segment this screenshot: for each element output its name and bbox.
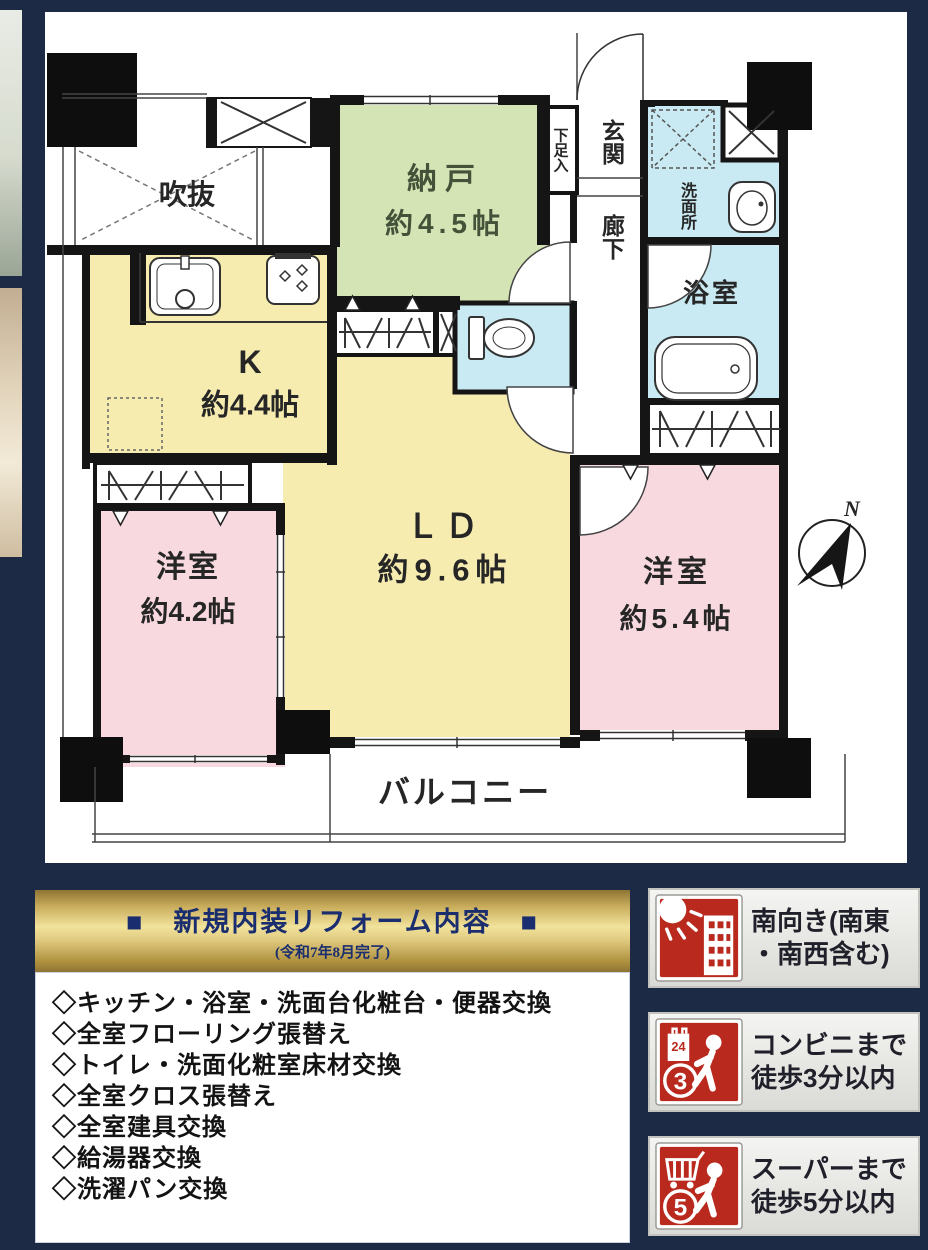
living-dining-label: ＬＤ — [406, 510, 484, 543]
renovation-item: ◇全室クロス張替え — [52, 1082, 629, 1113]
svg-text:24: 24 — [671, 1039, 685, 1054]
feature-badge-convenience-store: 24 3 コンビニまで 徒歩3分以内 — [648, 1012, 920, 1112]
badge-line: スーパーまで — [751, 1153, 907, 1186]
photo-edge-middle — [0, 288, 22, 557]
kitchen-sink-icon — [150, 256, 220, 315]
west-room-a-label: 洋室 — [156, 553, 220, 583]
photo-edge-top — [0, 10, 22, 276]
renovation-title: ■ 新規内装リフォーム内容 ■ — [35, 890, 630, 939]
supermarket-icon: 5 — [655, 1142, 743, 1230]
west-room-b-label: 洋室 — [643, 558, 711, 588]
renovation-item: ◇トイレ・洗面化粧室床材交換 — [52, 1051, 629, 1082]
shoe-box-label: 下足入 — [553, 128, 568, 173]
entrance-label: 玄関 — [600, 119, 623, 165]
balcony-label: バルコニー — [378, 776, 552, 808]
badge-text: コンビニまで 徒歩3分以内 — [751, 1029, 907, 1095]
renovation-item: ◇洗濯パン交換 — [52, 1175, 629, 1206]
convenience-store-icon: 24 3 — [655, 1018, 743, 1106]
feature-badge-south-facing: 南向き(南東 ・南西含む) — [648, 888, 920, 988]
storage-room-label: 納戸 — [407, 165, 483, 195]
hallway-label: 廊下 — [600, 214, 623, 260]
toilet-icon — [469, 317, 534, 359]
void-label: 吹抜 — [159, 181, 215, 209]
storage-room-size: 約4.5帖 — [385, 210, 505, 238]
west-room-b-size: 約5.4帖 — [620, 605, 735, 633]
svg-text:5: 5 — [674, 1194, 688, 1221]
badge-text: スーパーまで 徒歩5分以内 — [751, 1153, 907, 1219]
living-dining-size: 約9.6帖 — [377, 555, 512, 586]
svg-text:3: 3 — [674, 1068, 688, 1095]
renovation-item: ◇キッチン・浴室・洗面台化粧台・便器交換 — [52, 989, 629, 1020]
washroom-label: 洗面所 — [678, 182, 694, 230]
kitchen-label: K — [238, 346, 261, 378]
stove-icon — [267, 253, 319, 304]
badge-line: コンビニまで — [751, 1029, 907, 1062]
badge-line: 徒歩3分以内 — [751, 1062, 907, 1095]
badge-line: 徒歩5分以内 — [751, 1186, 907, 1219]
renovation-list: ◇キッチン・浴室・洗面台化粧台・便器交換 ◇全室フローリング張替え ◇トイレ・洗… — [35, 972, 630, 1243]
bathroom-label: 浴室 — [683, 280, 741, 306]
feature-badge-supermarket: 5 スーパーまで 徒歩5分以内 — [648, 1136, 920, 1236]
floor-plan-drawing — [45, 12, 907, 863]
compass-north-label: N — [844, 498, 860, 520]
washbasin-icon — [729, 182, 775, 232]
renovation-item: ◇全室建具交換 — [52, 1113, 629, 1144]
renovation-item: ◇全室フローリング張替え — [52, 1020, 629, 1051]
renovation-banner: ■ 新規内装リフォーム内容 ■ (令和7年8月完了) — [35, 890, 630, 972]
renovation-subtitle: (令和7年8月完了) — [35, 941, 630, 962]
badge-line: ・南西含む) — [751, 938, 890, 971]
kitchen-size: 約4.4帖 — [201, 392, 299, 421]
renovation-item: ◇給湯器交換 — [52, 1144, 629, 1175]
floor-plan: 吹抜 納戸 約4.5帖 K 約4.4帖 下足入 玄関 廊下 洗面所 浴室 ＬＤ … — [45, 12, 907, 863]
flyer-page: 吹抜 納戸 約4.5帖 K 約4.4帖 下足入 玄関 廊下 洗面所 浴室 ＬＤ … — [0, 0, 928, 1250]
badge-line: 南向き(南東 — [751, 905, 890, 938]
badge-text: 南向き(南東 ・南西含む) — [751, 905, 890, 971]
bathtub-icon — [655, 337, 757, 400]
sun-building-icon — [655, 894, 743, 982]
west-room-a-size: 約4.2帖 — [141, 598, 236, 626]
